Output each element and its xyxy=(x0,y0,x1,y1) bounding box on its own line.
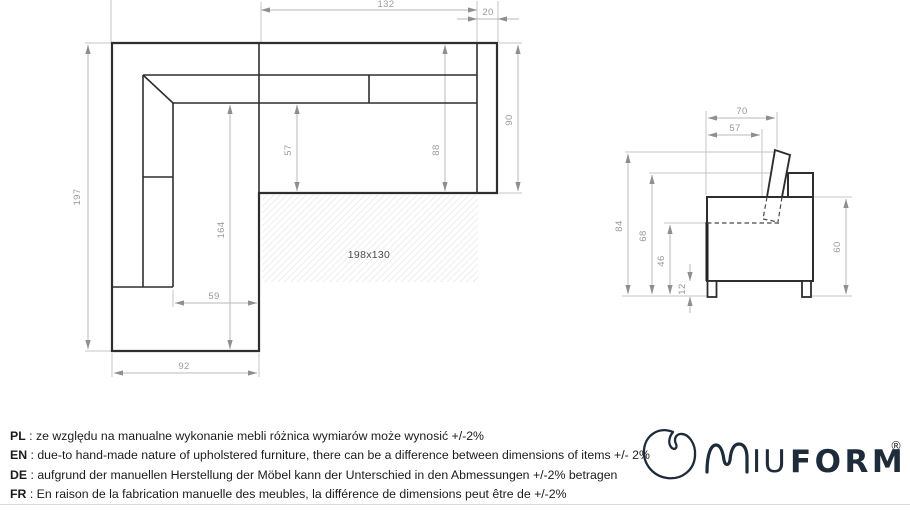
dim-side-seat-depth-label: 57 xyxy=(729,123,740,134)
bed-area-hatch xyxy=(262,195,478,282)
dim-total-height-label: 84 xyxy=(614,220,625,231)
note-text: due-to hand-made nature of upholstered f… xyxy=(37,448,650,462)
dim-depth-to-headrest-label: 70 xyxy=(736,106,747,117)
footer-note-en: EN : due-to hand-made nature of upholste… xyxy=(10,446,650,465)
dim-backrest-height-label: 68 xyxy=(638,230,649,241)
tolerance-notes: PL : ze względu na manualne wykonanie me… xyxy=(10,427,650,504)
top-view: 198x130 xyxy=(72,0,522,377)
headrest-flap xyxy=(767,150,790,197)
dim-right-side-depth-label: 90 xyxy=(504,114,515,125)
miuform-logo: IU FORM ® xyxy=(638,424,910,490)
dim-total-depth-label: 197 xyxy=(72,188,83,205)
logo-bean-icon xyxy=(644,430,695,478)
top-view-extension-lines xyxy=(85,0,522,377)
bed-area-label: 198x130 xyxy=(348,249,390,261)
note-lang: FR xyxy=(10,487,26,501)
dim-seat-width-label: 132 xyxy=(377,0,394,10)
footer-note-de: DE : aufgrund der manuellen Herstellung … xyxy=(10,466,650,485)
note-text: ze względu na manualne wykonanie mebli r… xyxy=(36,429,484,443)
logo-wordmark-form: FORM xyxy=(790,444,906,480)
note-lang: DE xyxy=(10,468,27,482)
note-text: aufgrund der manuellen Herstellung der M… xyxy=(37,468,617,482)
note-lang: EN xyxy=(10,448,27,462)
dim-back-span-label: 88 xyxy=(431,144,442,155)
dim-leg-height-label: 12 xyxy=(677,283,688,294)
dim-seat-height-label: 46 xyxy=(656,255,667,266)
backrest-block xyxy=(788,173,813,197)
technical-drawing: 198x130 xyxy=(0,0,910,420)
rear-leg xyxy=(802,281,811,297)
side-view-sofa xyxy=(707,150,813,297)
technical-drawing-sheet: 198x130 xyxy=(0,0,910,510)
bottom-divider xyxy=(0,504,910,505)
dim-seat-depth-label: 57 xyxy=(283,144,294,155)
note-text: En raison de la fabrication manuelle des… xyxy=(37,487,567,501)
footer-note-fr: FR : En raison de la fabrication manuell… xyxy=(10,485,650,504)
dim-chaise-total-width-label: 92 xyxy=(178,361,189,372)
footer-note-pl: PL : ze względu na manualne wykonanie me… xyxy=(10,427,650,446)
note-lang: PL xyxy=(10,429,26,443)
front-leg xyxy=(708,281,717,297)
dim-body-height-label: 60 xyxy=(832,241,843,252)
dim-chaise-length-label: 164 xyxy=(216,221,227,238)
dim-chaise-seat-width-label: 59 xyxy=(208,291,219,302)
dim-armrest-width-label: 20 xyxy=(482,7,493,18)
top-view-dimension-labels: 132 20 197 57 88 90 164 59 92 xyxy=(72,0,515,372)
logo-m-glyph xyxy=(707,444,747,472)
top-view-dimension-lines xyxy=(88,10,519,373)
logo-wordmark-iu: IU xyxy=(752,444,788,480)
registered-mark: ® xyxy=(890,439,902,453)
side-view: 70 57 84 68 46 12 60 xyxy=(614,106,852,313)
